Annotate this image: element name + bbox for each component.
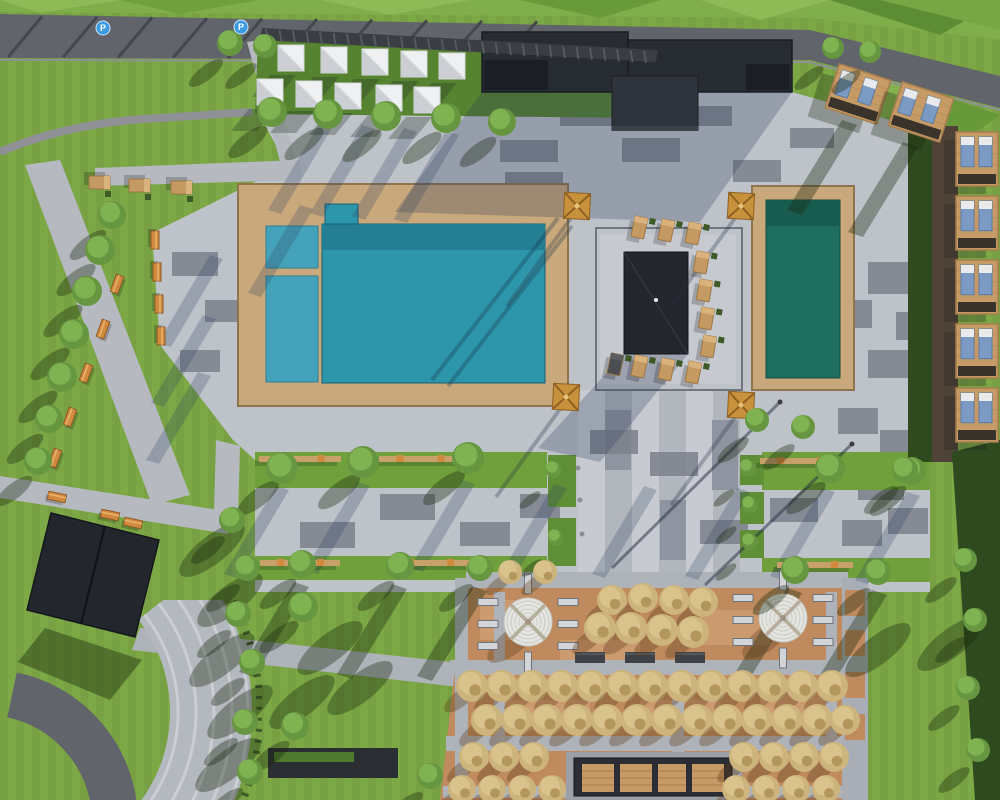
checker-tile [838, 408, 878, 434]
sub-pool-2 [266, 276, 318, 382]
right-pool-water [766, 200, 840, 378]
main-pool-stairs [325, 204, 358, 224]
picnic-table [478, 621, 498, 628]
entrance-edge [612, 126, 698, 131]
checker-tile [868, 262, 908, 294]
bollard [578, 498, 583, 503]
site-plan-canvas: PP [0, 0, 1000, 800]
plaza-stage-connector [214, 440, 240, 516]
svg-text:P: P [238, 22, 244, 32]
picnic-table [733, 595, 753, 602]
bollard [576, 466, 581, 471]
picnic-table [813, 595, 833, 602]
pavilion-dot [654, 298, 658, 302]
picnic-table [813, 617, 833, 624]
picnic-table [525, 652, 532, 672]
checker-tile [650, 452, 698, 476]
picnic-table [478, 599, 498, 606]
picnic-table [558, 621, 578, 628]
picnic-table [813, 639, 833, 646]
cabana-daybed [944, 324, 998, 386]
entrance-canopy [612, 76, 698, 130]
long-bench [375, 455, 461, 466]
picnic-table [558, 599, 578, 606]
svg-text:P: P [100, 23, 106, 33]
main-building-panel-2 [746, 64, 790, 90]
picnic-table [733, 639, 753, 646]
cabana-daybed [944, 196, 998, 258]
parking-icon: P [96, 21, 110, 35]
planter-slab-green [274, 752, 354, 762]
cabana-daybed [944, 388, 998, 450]
checker-tile [868, 350, 908, 378]
park-bench [154, 325, 165, 345]
picnic-table [780, 648, 787, 668]
checker-tile [460, 522, 510, 546]
cabana-daybed [944, 132, 998, 194]
checker-tile [842, 520, 882, 546]
cabana-daybed [944, 260, 998, 322]
bollard [580, 532, 585, 537]
parking-icon: P [234, 20, 248, 34]
park-bench [150, 261, 161, 281]
park-bench [148, 229, 159, 249]
hedge-strip [908, 126, 932, 462]
picnic-table [478, 643, 498, 650]
main-building-panel-1 [484, 60, 548, 90]
picnic-table [733, 617, 753, 624]
resort-aerial-render: PP [0, 0, 1000, 800]
main-pool-top-band [322, 224, 545, 250]
park-bench [152, 293, 163, 313]
